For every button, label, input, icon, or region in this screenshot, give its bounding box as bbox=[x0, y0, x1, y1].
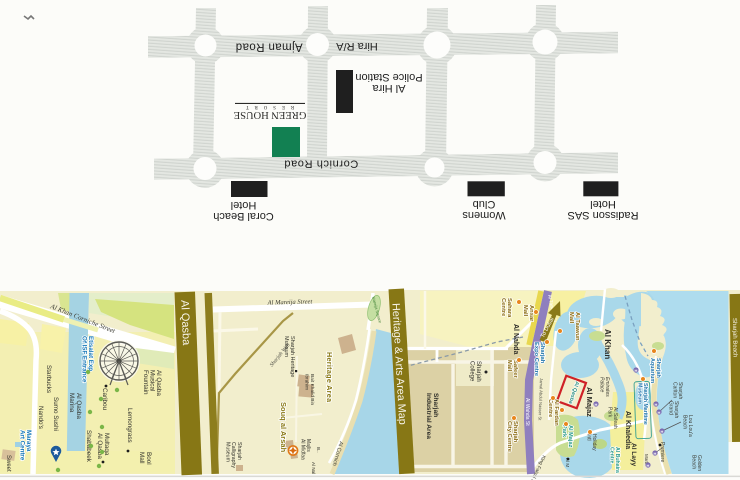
svg-text:Police Station: Police Station bbox=[355, 71, 422, 83]
svg-text:Sweet: Sweet bbox=[5, 455, 11, 472]
svg-text:Al Nal: Al Nal bbox=[311, 462, 316, 474]
svg-text:BoolMall: BoolMall bbox=[138, 452, 152, 465]
svg-text:H: H bbox=[661, 429, 664, 434]
svg-text:H: H bbox=[595, 402, 598, 407]
svg-text:SharjahCollege: SharjahCollege bbox=[468, 361, 481, 382]
svg-text:H: H bbox=[647, 463, 650, 468]
svg-text:Lemongrass: Lemongrass bbox=[126, 408, 133, 443]
svg-text:Al Qasba: Al Qasba bbox=[178, 300, 192, 347]
svg-text:H: H bbox=[635, 368, 638, 373]
svg-text:Al Nahda: Al Nahda bbox=[512, 324, 519, 354]
svg-text:Heritage Area: Heritage Area bbox=[325, 352, 334, 403]
svg-text:H: H bbox=[655, 402, 658, 407]
svg-text:SaharaCentre: SaharaCentre bbox=[500, 298, 512, 318]
svg-text:Al Wahda St: Al Wahda St bbox=[524, 398, 530, 426]
svg-text:H: H bbox=[658, 410, 661, 415]
svg-text:GREEN HOUSE: GREEN HOUSE bbox=[234, 109, 307, 120]
svg-text:GoldenBeach: GoldenBeach bbox=[691, 455, 702, 471]
svg-text:Al Layy: Al Layy bbox=[630, 443, 637, 467]
svg-text:Al Majaz: Al Majaz bbox=[585, 387, 594, 417]
svg-text:H: H bbox=[654, 451, 657, 456]
svg-text:Hotel: Hotel bbox=[231, 199, 257, 211]
svg-text:Cornich Road: Cornich Road bbox=[284, 158, 358, 170]
svg-text:Sharjah Beach: Sharjah Beach bbox=[731, 318, 738, 357]
svg-text:Nando's: Nando's bbox=[37, 406, 44, 429]
svg-text:Sumo Sushi: Sumo Sushi bbox=[52, 397, 59, 431]
svg-text:Hira R/A: Hira R/A bbox=[336, 40, 378, 52]
svg-text:Starbucks: Starbucks bbox=[45, 365, 52, 393]
svg-text:Ajman Road: Ajman Road bbox=[235, 41, 302, 53]
svg-text:Al Mareija Street: Al Mareija Street bbox=[267, 298, 313, 306]
svg-text:RESORT: RESORT bbox=[240, 104, 294, 109]
svg-text:Club: Club bbox=[473, 198, 496, 210]
svg-text:B..: B.. bbox=[316, 447, 321, 453]
svg-text:Al Khan: Al Khan bbox=[603, 329, 612, 359]
svg-text:SharjahCarlton: SharjahCarlton bbox=[672, 382, 683, 399]
svg-text:Hotel: Hotel bbox=[590, 198, 616, 210]
svg-text:Al Khaledia: Al Khaledia bbox=[624, 411, 631, 449]
svg-text:Souq al Arsah: Souq al Arsah bbox=[279, 402, 288, 453]
